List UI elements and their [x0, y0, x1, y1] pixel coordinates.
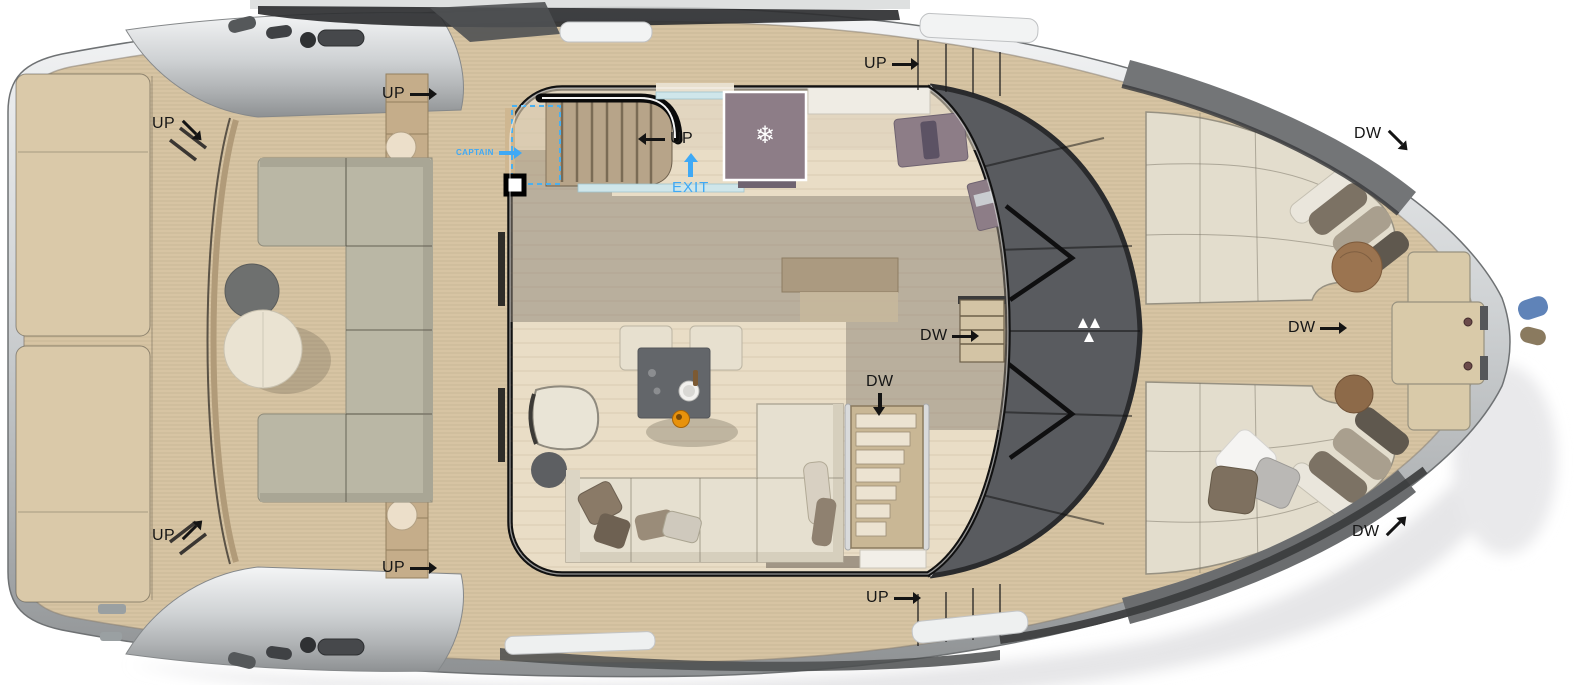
- label-text: DW: [1288, 320, 1315, 336]
- bow-hatch: [1392, 302, 1484, 384]
- label-up-aft-port-stairs-bottom: UP: [152, 528, 199, 544]
- foredeck-table: [1335, 375, 1373, 413]
- label-dw-foredeck-port: DW: [1354, 126, 1405, 142]
- yacht-deck-plan: UP UP UP CAPTAIN EXIT UP DW DW DW DW DW …: [0, 0, 1578, 685]
- label-up-flybridge-stairs: UP: [646, 131, 693, 147]
- winch-icon: [318, 30, 364, 46]
- door-track: [578, 184, 744, 192]
- foredeck-table: [1332, 242, 1382, 292]
- cleat-icon: [300, 637, 316, 653]
- snowflake-icon: ❄: [747, 120, 783, 152]
- label-up-sidedeck-stbd-aft: UP: [382, 560, 429, 576]
- label-text: UP: [866, 590, 889, 606]
- label-up-sidedeck-stbd-fwd: UP: [866, 590, 913, 606]
- label-text: UP: [864, 56, 887, 72]
- stool: [531, 452, 567, 488]
- label-up-aft-port-stairs-top: UP: [152, 116, 199, 132]
- arrow-right-icon: [410, 567, 429, 570]
- deck-plan-drawing: [0, 0, 1578, 685]
- arrow-right-icon: [499, 151, 514, 155]
- bow-cleat-icon: [1516, 294, 1551, 322]
- arrow-right-icon: [1320, 327, 1339, 330]
- label-dw-foredeck-center: DW: [1288, 320, 1339, 336]
- pillow: [1207, 465, 1259, 515]
- arrow-right-icon: [892, 63, 911, 66]
- arrow-up-right-icon: [1386, 521, 1402, 537]
- label-text: DW: [866, 374, 893, 390]
- label-up-sidedeck-port-aft: UP: [382, 86, 429, 102]
- armchair: [530, 386, 598, 449]
- label-text: UP: [382, 560, 405, 576]
- swim-platform: [16, 74, 152, 641]
- label-text: DW: [1354, 126, 1381, 142]
- label-exit-door: EXIT: [672, 162, 709, 195]
- label-text: UP: [152, 116, 175, 132]
- label-text: UP: [152, 528, 175, 544]
- arrow-up-right-icon: [182, 525, 198, 541]
- label-dw-lower-deck-stairs: DW: [866, 374, 893, 407]
- arrow-down-icon: [878, 393, 882, 407]
- cleat-icon: [300, 32, 316, 48]
- galley-counter: [808, 88, 930, 114]
- label-up-sidedeck-port-fwd: UP: [864, 56, 911, 72]
- arrow-right-icon: [894, 597, 913, 600]
- helm-seat: [894, 112, 969, 167]
- label-captain-door: CAPTAIN: [456, 149, 514, 157]
- cocktail-table: [225, 264, 279, 318]
- label-text: CAPTAIN: [456, 149, 494, 157]
- label-text: UP: [670, 131, 693, 147]
- arrow-left-icon: [646, 138, 665, 141]
- arrow-right-icon: [952, 335, 971, 338]
- arrow-right-icon: [410, 93, 429, 96]
- label-text: UP: [382, 86, 405, 102]
- label-dw-pilothouse-steps: DW: [920, 328, 971, 344]
- galley-island: [782, 258, 898, 292]
- label-text: DW: [1352, 524, 1379, 540]
- arrow-up-icon: [688, 162, 693, 177]
- label-text: DW: [920, 328, 947, 344]
- winch-icon: [318, 639, 364, 655]
- label-text: EXIT: [672, 180, 709, 195]
- lower-deck-staircase: [845, 404, 929, 568]
- coffee-table: [638, 348, 710, 428]
- label-dw-foredeck-starboard: DW: [1352, 524, 1403, 540]
